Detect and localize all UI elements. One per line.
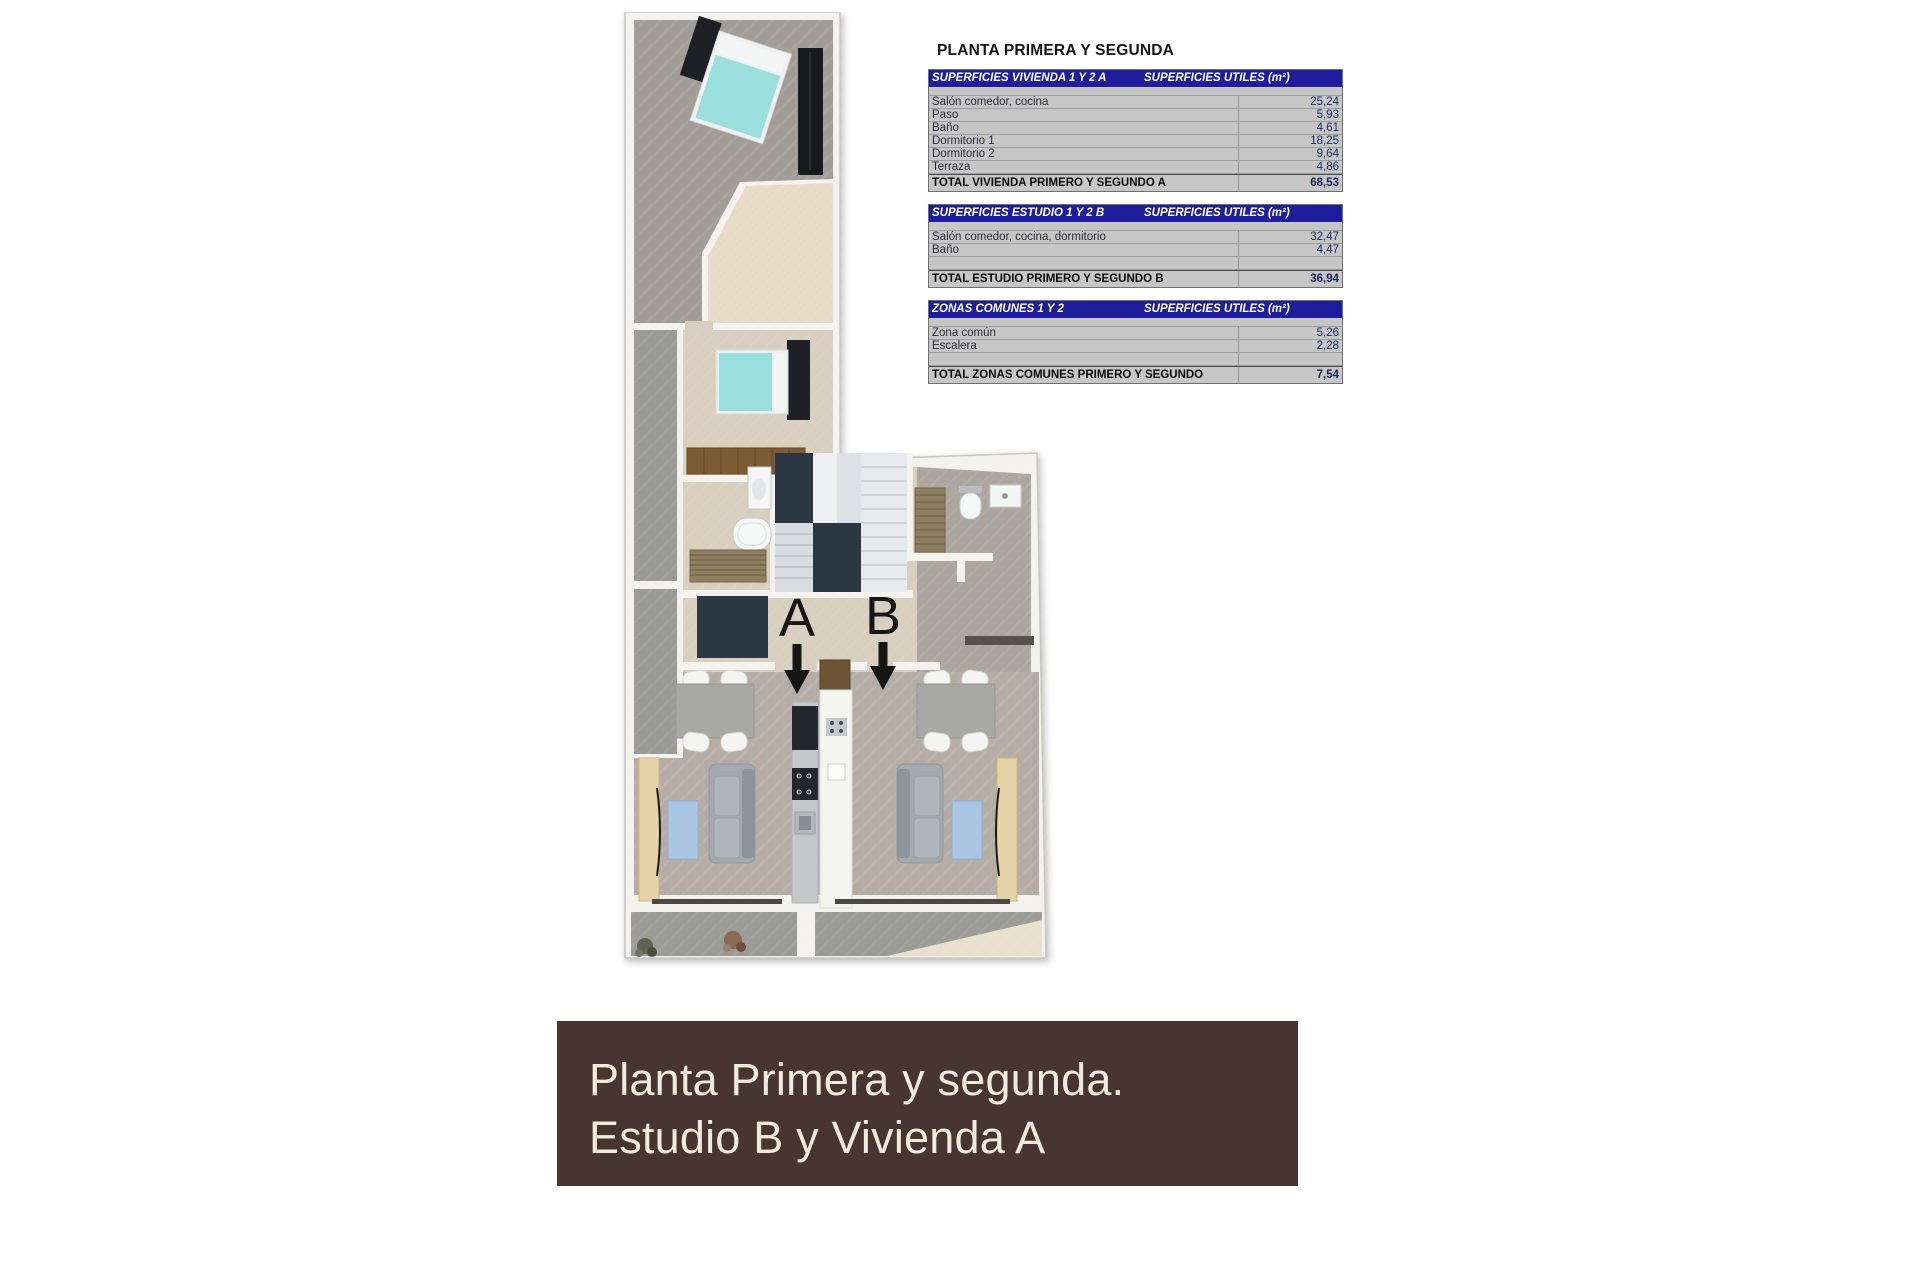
table-row: Baño 4,47: [929, 244, 1342, 257]
rug-b: [952, 801, 982, 859]
sofa-a: [709, 764, 755, 863]
table-cell-value: 5,26: [1239, 327, 1342, 339]
caption-line-1: Planta Primera y segunda.: [589, 1051, 1298, 1109]
staircase: [775, 453, 907, 592]
table-header-left: SUPERFICIES ESTUDIO 1 Y 2 B: [932, 207, 1104, 219]
bed-single: [716, 340, 810, 420]
table-cell-value: 9,64: [1239, 148, 1342, 160]
table-header: ZONAS COMUNES 1 Y 2 SUPERFICIES UTILES (…: [929, 301, 1342, 318]
table-row: [929, 257, 1342, 270]
table-rows: Zona común 5,26 Escalera 2,28: [929, 327, 1342, 366]
table-cell-value: 32,47: [1239, 231, 1342, 243]
table-total-row: TOTAL ZONAS COMUNES PRIMERO Y SEGUNDO 7,…: [929, 366, 1342, 383]
spacer-row: [929, 222, 1342, 231]
page: A B PLANTA PRIMERA Y SEGUNDA SUPERFICIES…: [0, 0, 1920, 1280]
table-row: Escalera 2,28: [929, 340, 1342, 353]
table-row: Zona común 5,26: [929, 327, 1342, 340]
total-label: TOTAL ESTUDIO PRIMERO Y SEGUNDO B: [929, 271, 1239, 287]
table-row: Dormitorio 1 18,25: [929, 135, 1342, 148]
table-row: [929, 353, 1342, 366]
table-cell-label: Salón comedor, cocina, dormitorio: [929, 231, 1239, 243]
table-total-row: TOTAL ESTUDIO PRIMERO Y SEGUNDO B 36,94: [929, 270, 1342, 287]
table-header-right: SUPERFICIES UTILES (m²): [1144, 205, 1290, 222]
table-rows: Salón comedor, cocina, dormitorio 32,47 …: [929, 231, 1342, 270]
table-cell-value: [1239, 257, 1342, 269]
table-cell-label: Dormitorio 1: [929, 135, 1239, 147]
table-cell-value: 2,28: [1239, 340, 1342, 352]
table-header-left: ZONAS COMUNES 1 Y 2: [932, 303, 1064, 315]
table-cell-value: 4,86: [1239, 161, 1342, 173]
table-cell-label: Baño: [929, 244, 1239, 256]
caption-banner: Planta Primera y segunda. Estudio B y Vi…: [557, 1021, 1298, 1186]
table-row: Dormitorio 2 9,64: [929, 148, 1342, 161]
table-cell-value: 5,93: [1239, 109, 1342, 121]
total-label: TOTAL ZONAS COMUNES PRIMERO Y SEGUNDO: [929, 367, 1239, 383]
spacer-row: [929, 87, 1342, 96]
table-row: Terraza 4,86: [929, 161, 1342, 174]
table-header-right: SUPERFICIES UTILES (m²): [1144, 70, 1290, 87]
table-cell-label: Paso: [929, 109, 1239, 121]
table-header-right: SUPERFICIES UTILES (m²): [1144, 301, 1290, 318]
table-cell-value: 25,24: [1239, 96, 1342, 108]
rug-a: [668, 801, 698, 859]
table-cell-label: Salón comedor, cocina: [929, 96, 1239, 108]
table-cell-label: Baño: [929, 122, 1239, 134]
table-total-row: TOTAL VIVIENDA PRIMERO Y SEGUNDO A 68,53: [929, 174, 1342, 191]
total-value: 36,94: [1239, 271, 1342, 287]
wardrobe-dark: [798, 48, 823, 175]
sideboard-b: [996, 758, 1017, 901]
table-cell-value: 18,25: [1239, 135, 1342, 147]
table-header: SUPERFICIES VIVIENDA 1 Y 2 A SUPERFICIES…: [929, 70, 1342, 87]
unit-b-label: B: [865, 586, 901, 646]
total-value: 68,53: [1239, 175, 1342, 191]
hall-void: [697, 596, 768, 658]
table-rows: Salón comedor, cocina 25,24 Paso 5,93 Ba…: [929, 96, 1342, 174]
table-cell-label: [929, 257, 1239, 269]
sofa-b: [897, 764, 943, 863]
table-cell-value: 4,61: [1239, 122, 1342, 134]
caption-line-2: Estudio B y Vivienda A: [589, 1109, 1298, 1167]
unit-a-label: A: [779, 588, 815, 648]
table-cell-label: Escalera: [929, 340, 1239, 352]
spacer-row: [929, 318, 1342, 327]
table-cell-value: [1239, 353, 1342, 365]
table-row: Salón comedor, cocina, dormitorio 32,47: [929, 231, 1342, 244]
table-cell-value: 4,47: [1239, 244, 1342, 256]
total-label: TOTAL VIVIENDA PRIMERO Y SEGUNDO A: [929, 175, 1239, 191]
page-title: PLANTA PRIMERA Y SEGUNDA: [928, 42, 1343, 60]
table-cell-label: Dormitorio 2: [929, 148, 1239, 160]
table-cell-label: [929, 353, 1239, 365]
sideboard-a: [639, 758, 660, 901]
table-cell-label: Zona común: [929, 327, 1239, 339]
table-row: Baño 4,61: [929, 122, 1342, 135]
table-header: SUPERFICIES ESTUDIO 1 Y 2 B SUPERFICIES …: [929, 205, 1342, 222]
total-value: 7,54: [1239, 367, 1342, 383]
table-estudio-b: SUPERFICIES ESTUDIO 1 Y 2 B SUPERFICIES …: [928, 204, 1343, 288]
table-zonas-comunes: ZONAS COMUNES 1 Y 2 SUPERFICIES UTILES (…: [928, 300, 1343, 384]
table-cell-label: Terraza: [929, 161, 1239, 173]
table-header-left: SUPERFICIES VIVIENDA 1 Y 2 A: [932, 72, 1106, 84]
area-sheet: PLANTA PRIMERA Y SEGUNDA SUPERFICIES VIV…: [928, 42, 1343, 384]
table-row: Salón comedor, cocina 25,24: [929, 96, 1342, 109]
table-row: Paso 5,93: [929, 109, 1342, 122]
table-vivienda-a: SUPERFICIES VIVIENDA 1 Y 2 A SUPERFICIES…: [928, 69, 1343, 192]
